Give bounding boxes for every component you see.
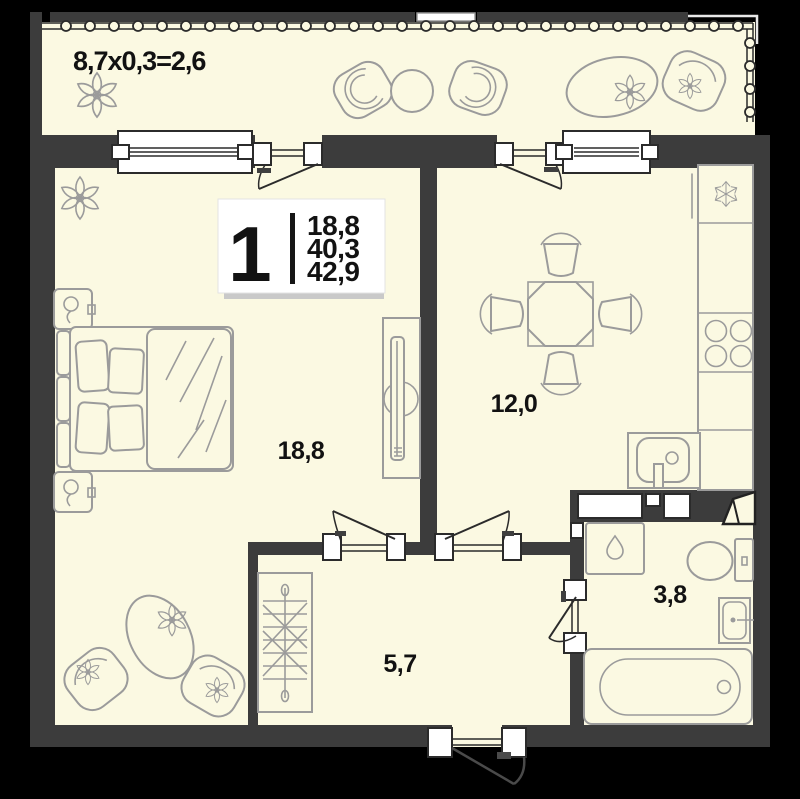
railing-baluster (325, 21, 335, 31)
railing-baluster (613, 21, 623, 31)
hall-wall-mid (405, 542, 439, 555)
floorplan-page: 8,7x0,3=2,6 (0, 0, 800, 799)
door-handle (497, 752, 511, 759)
toilet (688, 539, 754, 581)
balcony-left-wall (30, 12, 42, 135)
railing-baluster (253, 21, 263, 31)
bottom-wall (30, 725, 770, 747)
railing-baluster (61, 21, 71, 31)
total-area-value: 42,9 (307, 256, 360, 287)
window-kitchen (556, 131, 658, 173)
railing-baluster (745, 84, 755, 94)
left-wall (30, 135, 55, 747)
door-handle (544, 167, 558, 172)
railing-baluster (229, 21, 239, 31)
railing-baluster (109, 21, 119, 31)
living-area-label: 18,8 (278, 437, 325, 465)
railing-baluster (397, 21, 407, 31)
right-wall (753, 135, 770, 747)
bathroom-area-label: 3,8 (653, 581, 687, 609)
railing-baluster (493, 21, 503, 31)
railing-baluster (205, 21, 215, 31)
railing-baluster (85, 21, 95, 31)
door-handle (502, 531, 514, 536)
railing-baluster (133, 21, 143, 31)
balcony-area-label: 8,7x0,3=2,6 (73, 46, 206, 76)
railing-baluster (745, 107, 755, 117)
plate-divider (290, 213, 295, 284)
railing-baluster (157, 21, 167, 31)
kitchen-sink-cabinet (628, 433, 700, 488)
nightstand-top (54, 289, 95, 329)
blanket (147, 329, 231, 469)
railing-baluster (469, 21, 479, 31)
railing-baluster (685, 21, 695, 31)
railing-baluster (277, 21, 287, 31)
washing-machine (586, 523, 644, 574)
railing-baluster (181, 21, 191, 31)
living-kitchen-wall (420, 168, 437, 555)
door-handle (335, 531, 346, 536)
double-bed (57, 327, 233, 471)
wash-basin (719, 598, 754, 643)
railing-baluster (733, 21, 743, 31)
pillow (108, 405, 144, 451)
balcony-top-bar-right (477, 12, 688, 22)
entrance-opening (452, 725, 502, 747)
railing-baluster (541, 21, 551, 31)
railing-baluster (589, 21, 599, 31)
duct-shaft-1 (578, 494, 642, 518)
pillow (108, 348, 144, 394)
wardrobe (258, 573, 312, 712)
duct-shaft-2 (646, 494, 660, 506)
door-handle (257, 168, 271, 173)
railing-baluster (709, 21, 719, 31)
info-plate: 1 18,8 40,3 42,9 (218, 199, 385, 299)
hallway-area-label: 5,7 (383, 650, 416, 678)
kitchen-counter-run (692, 165, 753, 490)
railing-baluster (517, 21, 527, 31)
duct-shaft-4 (571, 523, 583, 538)
railing-baluster (373, 21, 383, 31)
pillow (75, 340, 109, 392)
railing-baluster (445, 21, 455, 31)
tv-console (383, 318, 420, 478)
bathtub (584, 649, 752, 724)
sink-faucet (654, 464, 663, 488)
hall-wall-right (521, 542, 574, 555)
hall-left-wall (248, 542, 258, 728)
railing-baluster (661, 21, 671, 31)
railing-baluster (421, 21, 431, 31)
window-living (112, 131, 255, 173)
rooms-count: 1 (228, 210, 271, 298)
railing-baluster (637, 21, 647, 31)
balcony: 8,7x0,3=2,6 (30, 12, 757, 135)
floorplan-svg: 8,7x0,3=2,6 (0, 0, 800, 799)
balcony-glazing-gap (417, 13, 475, 21)
railing-baluster (745, 61, 755, 71)
kitchen-area-label: 12,0 (491, 390, 538, 418)
railing-baluster (349, 21, 359, 31)
balcony-round-table (391, 70, 433, 112)
door-handle (561, 591, 566, 602)
railing-baluster (301, 21, 311, 31)
nightstand-bottom (54, 472, 95, 512)
railing-baluster (565, 21, 575, 31)
duct-shaft-3 (664, 494, 690, 518)
railing-baluster (745, 38, 755, 48)
pillow (75, 402, 109, 454)
dining-table (528, 282, 593, 346)
